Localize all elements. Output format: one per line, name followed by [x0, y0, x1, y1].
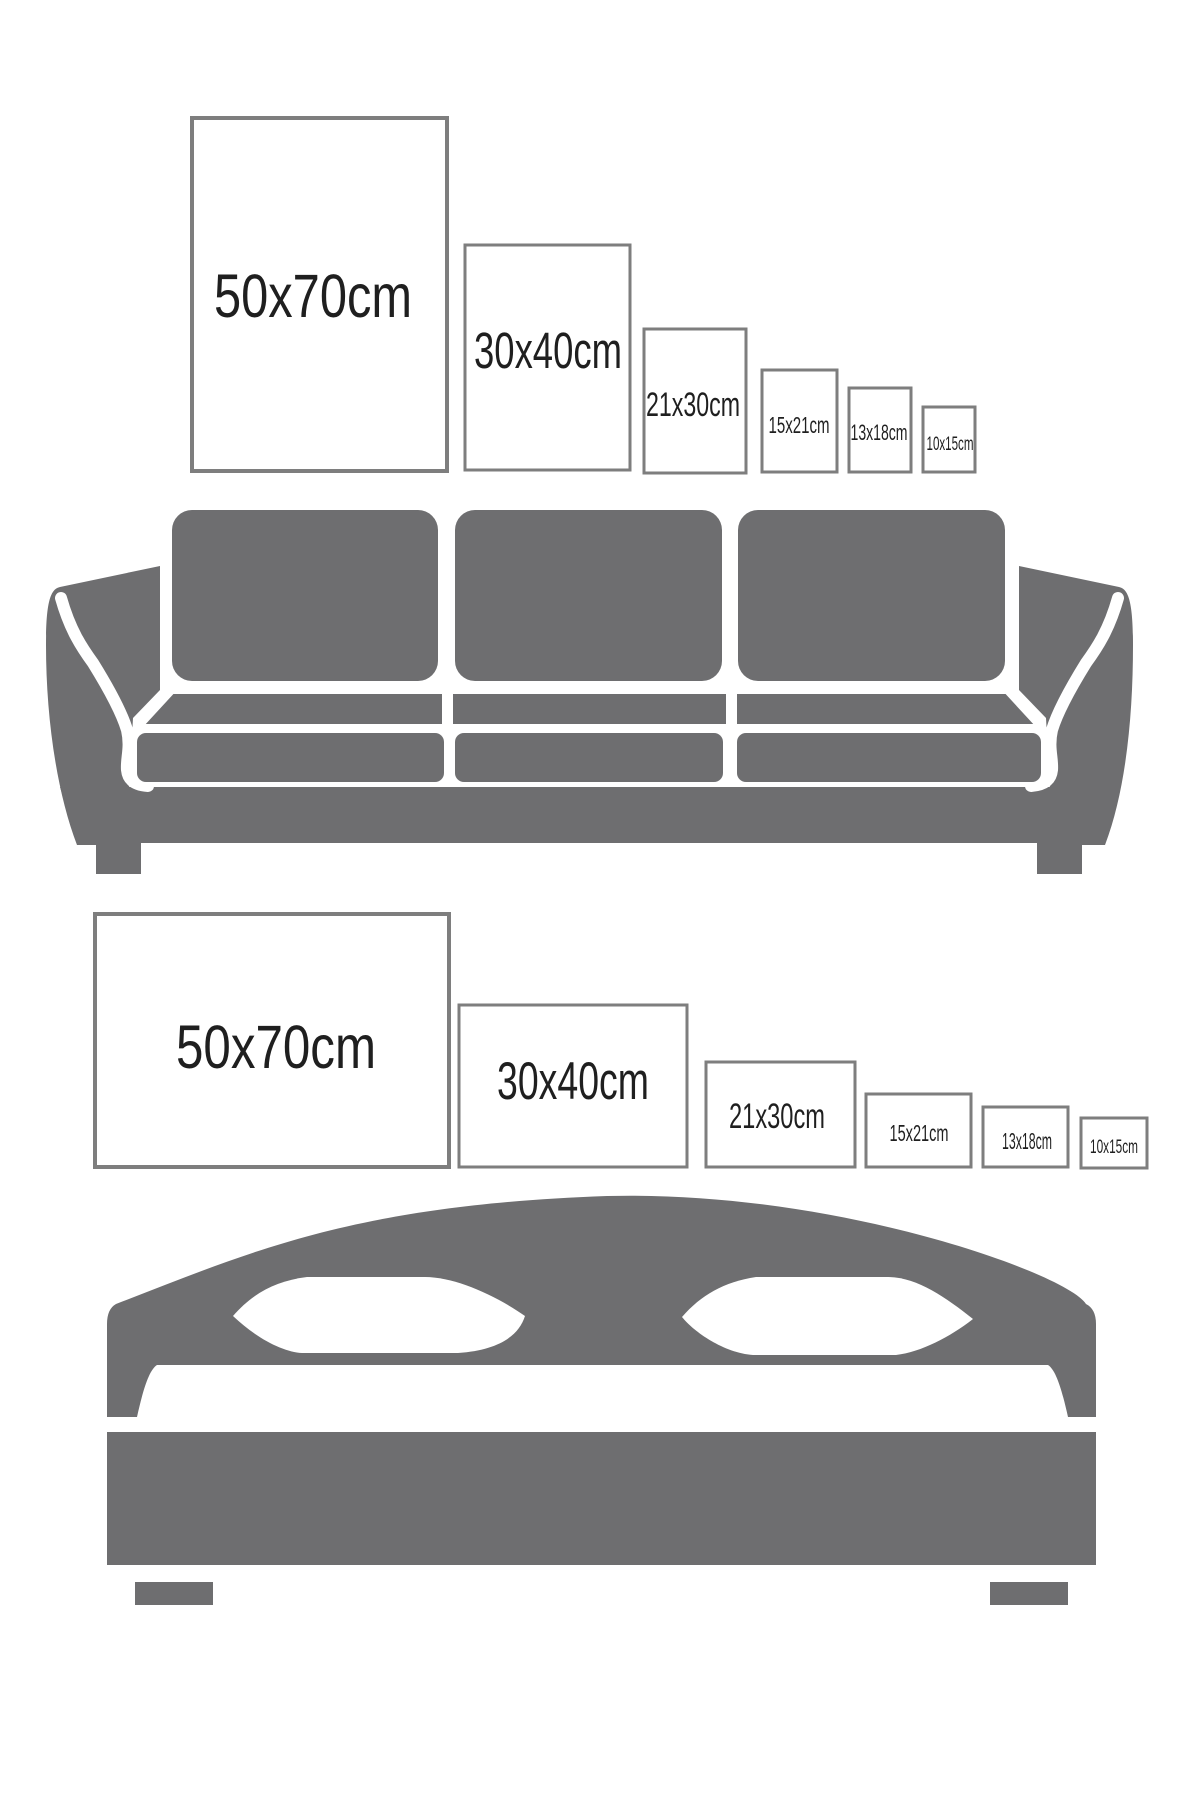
- svg-text:30x40cm: 30x40cm: [497, 1052, 649, 1111]
- svg-text:13x18cm: 13x18cm: [1002, 1128, 1052, 1154]
- svg-text:50x70cm: 50x70cm: [214, 262, 412, 330]
- svg-text:15x21cm: 15x21cm: [890, 1120, 949, 1146]
- svg-text:50x70cm: 50x70cm: [176, 1013, 376, 1081]
- svg-text:10x15cm: 10x15cm: [1090, 1136, 1138, 1158]
- svg-text:30x40cm: 30x40cm: [474, 322, 622, 379]
- svg-text:15x21cm: 15x21cm: [769, 412, 830, 438]
- svg-text:13x18cm: 13x18cm: [851, 420, 908, 445]
- svg-text:10x15cm: 10x15cm: [927, 434, 974, 455]
- svg-text:21x30cm: 21x30cm: [729, 1097, 825, 1136]
- svg-text:21x30cm: 21x30cm: [646, 386, 740, 424]
